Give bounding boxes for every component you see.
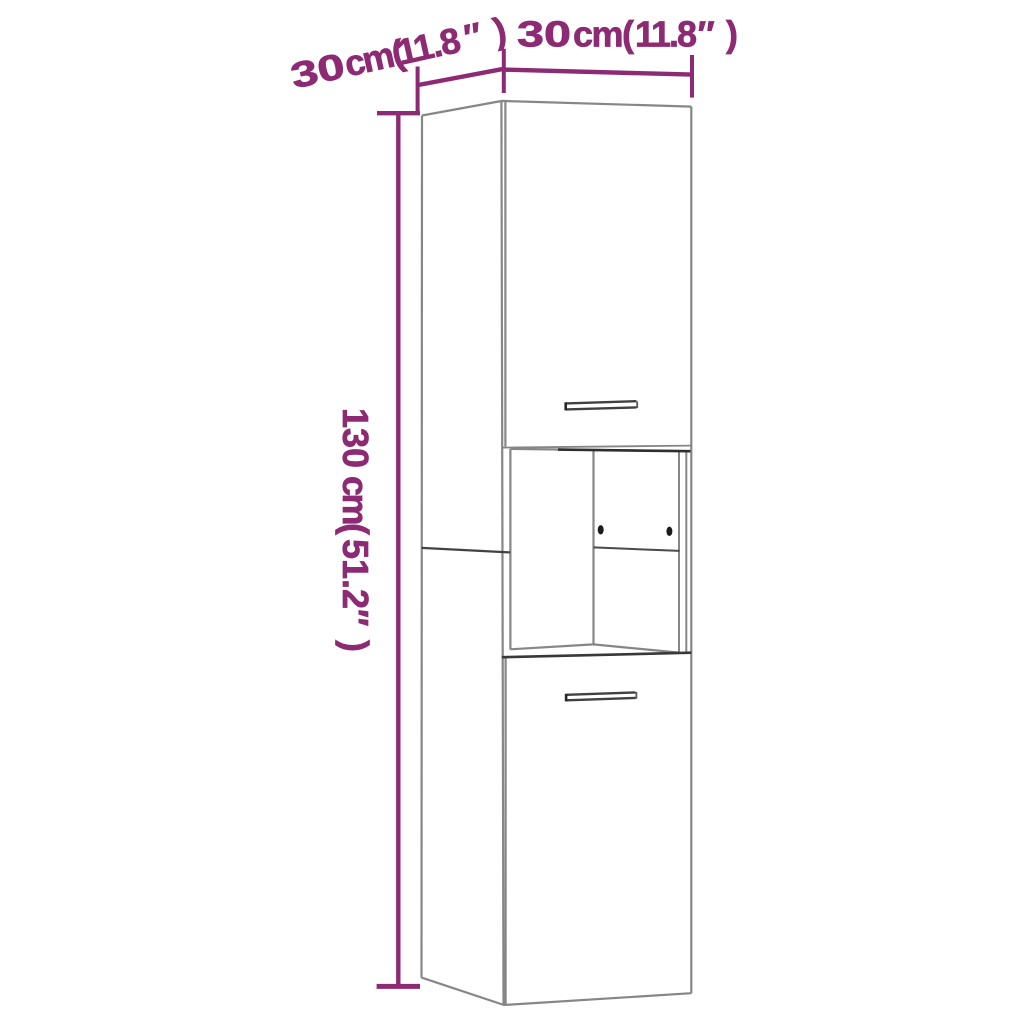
- svg-text:): ): [726, 14, 738, 55]
- svg-text:130: 130: [335, 408, 376, 468]
- svg-text:″: ″: [335, 609, 376, 626]
- svg-text:″: ″: [698, 14, 715, 55]
- svg-text:): ): [335, 640, 376, 652]
- svg-text:30: 30: [517, 15, 571, 55]
- svg-text:11.8: 11.8: [635, 14, 696, 55]
- svg-text:cm(: cm(: [335, 476, 376, 535]
- svg-text:cm(: cm(: [573, 14, 634, 55]
- svg-text:51.2: 51.2: [335, 539, 376, 609]
